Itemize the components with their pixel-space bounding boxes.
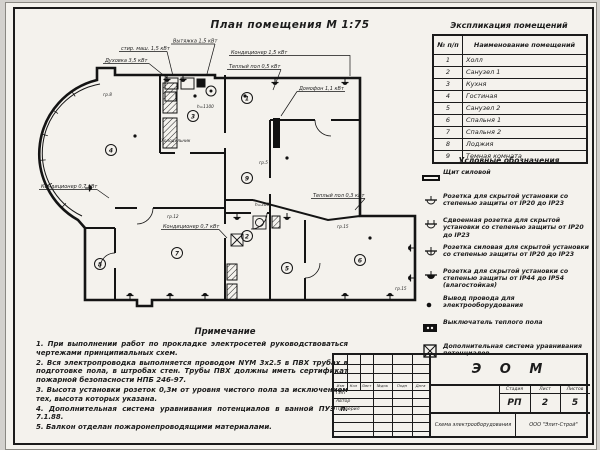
annotation: Домофон 1,1 кВт <box>281 86 345 116</box>
svg-text:Домофон 1,1 кВт: Домофон 1,1 кВт <box>298 86 345 92</box>
floor-plan: стир. маш. 1,5 кВт Вытяжка 1,5 кВт Конди… <box>15 38 425 332</box>
stamp-col-list: Лист <box>360 383 373 388</box>
room-number: 1 <box>242 93 253 104</box>
svg-text:1: 1 <box>245 96 249 103</box>
annotation: Теплый пол 0,3 кВт <box>311 193 365 210</box>
svg-text:2: 2 <box>245 234 249 241</box>
svg-text:6: 6 <box>358 258 362 265</box>
svg-text:Кондиционер 0,7 кВт: Кондиционер 0,7 кВт <box>41 184 98 190</box>
svg-text:Теплый пол 0,5 кВт: Теплый пол 0,5 кВт <box>229 64 281 70</box>
svg-text:стир. маш. 1,5 кВт: стир. маш. 1,5 кВт <box>121 46 171 52</box>
room-number: 4 <box>106 145 117 156</box>
annotation: Вытяжка 1,5 кВт <box>171 39 218 75</box>
hatched-piers <box>163 83 280 300</box>
legend-item: Вывод провода для электрооборудования <box>421 295 591 314</box>
svg-text:3: 3 <box>191 114 195 121</box>
socket-symbols <box>85 75 415 300</box>
annotation: Кондиционер 0,7 кВт <box>161 224 227 238</box>
svg-text:9: 9 <box>245 176 249 183</box>
svg-text:Теплый пол 0,3 кВт: Теплый пол 0,3 кВт <box>313 193 365 199</box>
legend-item: Розетка для скрытой установки со степень… <box>421 268 591 290</box>
power-board-icon <box>421 169 443 188</box>
table-row: 8Лоджия <box>433 139 587 151</box>
stage-label: Стадия <box>499 385 530 393</box>
sheet: { "plan": { "title": "План помещения М 1… <box>0 0 600 450</box>
svg-text:Кондиционер 0,7 кВт: Кондиционер 0,7 кВт <box>163 224 220 230</box>
stamp-col-kol: Кол <box>347 383 360 388</box>
legend-item: Розетка силовая для скрытой установки со… <box>421 244 591 263</box>
note-item: 1. При выполнении работ по прокладке эле… <box>36 340 348 358</box>
svg-text:гр.15: гр.15 <box>337 224 349 229</box>
stamp-role-author: Автор <box>336 399 350 404</box>
annotation: Кондиционер 1,5 кВт <box>229 50 350 76</box>
legend-item: Щит силовой <box>421 169 591 188</box>
plan-title: План помещения М 1:75 <box>175 19 405 31</box>
door-arcs <box>100 120 331 278</box>
table-row: 6Спальня 1 <box>433 115 587 127</box>
project-code: Э О М <box>431 355 590 384</box>
note-item: 4. Дополнительная система уравнивания по… <box>36 405 348 423</box>
sheet-label: Лист <box>530 385 560 393</box>
legend-title: Условные обозначения <box>428 156 590 165</box>
legend-item: Сдвоенная розетка для скрытой установки … <box>421 217 591 239</box>
svg-text:гр.15: гр.15 <box>395 286 407 291</box>
table-row: 4Гостиная <box>433 91 587 103</box>
notes: 1. При выполнении работ по прокладке эле… <box>36 340 348 433</box>
note-item: 3. Высота установки розеток 0,3м от уров… <box>36 386 348 404</box>
stamp-col-izm: Изм <box>334 383 347 388</box>
table-row: 7Спальня 2 <box>433 127 587 139</box>
svg-text:гр.5: гр.5 <box>259 160 268 165</box>
title-block: Изм Кол Лист №док Подп Дата ГИП Автор Пр… <box>332 353 588 438</box>
room-number: 6 <box>355 255 366 266</box>
interior-walls <box>85 75 360 300</box>
sheet-value: 2 <box>530 393 560 412</box>
power-socket-icon <box>421 244 443 263</box>
wire-outlet-icon <box>421 295 443 314</box>
note-item: 5. Балкон отделан пожаронепроводящими ма… <box>36 423 348 432</box>
svg-text:Духовка 3,5 кВт: Духовка 3,5 кВт <box>104 58 148 64</box>
annotation: Холодильник <box>160 138 191 143</box>
svg-text:5: 5 <box>285 266 289 273</box>
svg-text:7: 7 <box>175 251 180 258</box>
socket-icon <box>421 193 443 212</box>
waterproof-socket-icon <box>421 268 443 287</box>
stamp-col-data: Дата <box>412 383 429 388</box>
room-number: 9 <box>242 173 253 184</box>
svg-text:h=300: h=300 <box>255 202 269 207</box>
stage-value: РП <box>499 393 530 412</box>
room-numbers: 1 2 3 4 5 6 7 8 9 <box>95 93 366 274</box>
room-number: 5 <box>282 263 293 274</box>
svg-text:гр.12: гр.12 <box>167 214 179 219</box>
stamp-role-checker: Проверил <box>336 407 360 412</box>
col-header-name: Наименование помещений <box>463 35 588 55</box>
room-number: 8 <box>95 259 106 270</box>
doc-name: Схема электрооборудования <box>431 414 515 436</box>
svg-text:Холодильник: Холодильник <box>160 138 191 143</box>
svg-text:Кондиционер 1,5 кВт: Кондиционер 1,5 кВт <box>231 50 288 56</box>
company-name: ООО "Элит-Строй" <box>517 414 590 436</box>
double-socket-icon <box>421 217 443 236</box>
legend-item: Розетка для скрытой установки со степень… <box>421 193 591 212</box>
table-row: 2Санузел 1 <box>433 67 587 79</box>
col-header-num: № п/п <box>433 35 463 55</box>
svg-text:h=1100: h=1100 <box>197 104 214 109</box>
power-board-symbol <box>273 118 280 148</box>
stamp-col-podp: Подп <box>392 383 412 388</box>
note-item: 2. Вся электропроводка выполняется прово… <box>36 359 348 385</box>
svg-text:Вытяжка 1,5 кВт: Вытяжка 1,5 кВт <box>173 39 218 45</box>
notes-title: Примечание <box>160 327 290 337</box>
svg-text:8: 8 <box>98 262 102 269</box>
table-row: 3Кухня <box>433 79 587 91</box>
sheets-value: 5 <box>560 393 590 412</box>
room-number: 3 <box>188 111 199 122</box>
svg-text:гр.8: гр.8 <box>103 92 112 97</box>
table-header-row: № п/п Наименование помещений <box>433 35 587 55</box>
explication-table: № п/п Наименование помещений 1Холл 2Сану… <box>432 34 588 164</box>
table-row: 1Холл <box>433 55 587 67</box>
table-row: 5Санузел 2 <box>433 103 587 115</box>
legend: Щит силовой Розетка для скрытой установк… <box>421 169 591 368</box>
stamp-col-doc: №док <box>373 383 392 388</box>
legend-item: Выключатель теплого пола <box>421 319 591 338</box>
explication-title: Экспликация помещений <box>428 21 590 30</box>
room-number: 7 <box>172 248 183 259</box>
stamp-role-gip: ГИП <box>336 391 345 396</box>
svg-text:4: 4 <box>109 148 113 155</box>
floor-heating-switch-icon <box>421 319 443 338</box>
sheets-label: Листов <box>560 385 590 393</box>
